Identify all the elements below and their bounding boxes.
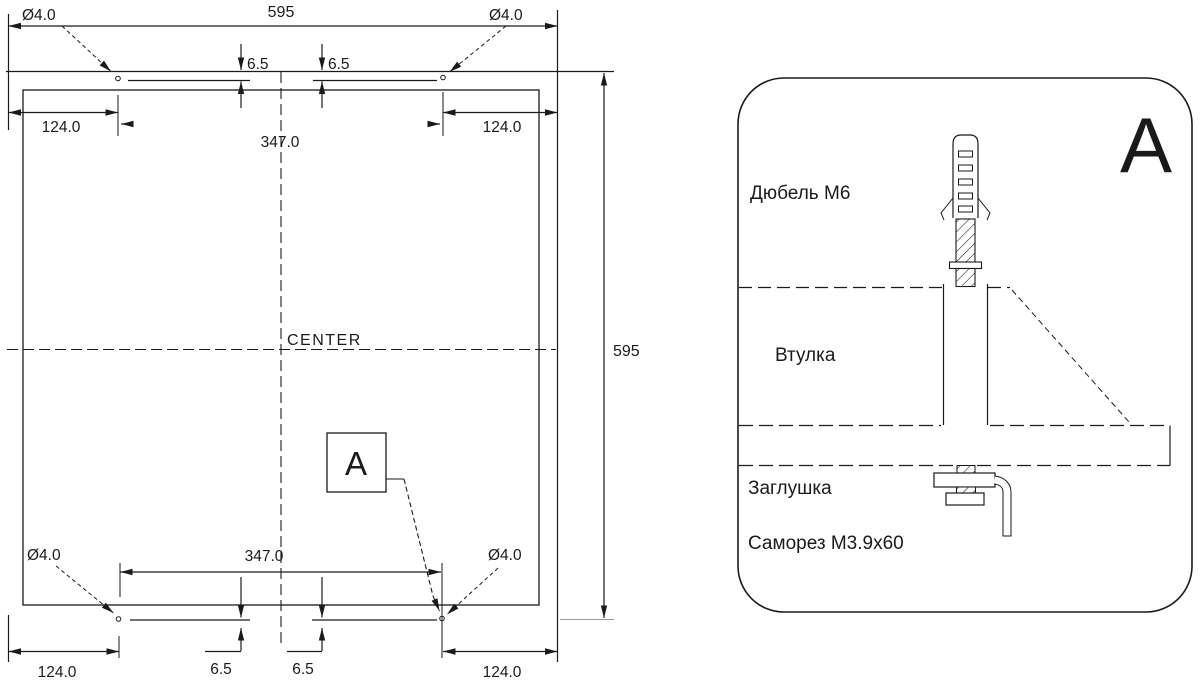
mounting-drawing-page: 595 595 6.5 6.5 124.0 124.0 347.0 CENTER…	[0, 0, 1200, 680]
dim-edge-offset-bottom-left-label: 124.0	[38, 664, 77, 680]
dim-edge-offset-bottom-right-label: 124.0	[483, 664, 522, 680]
dim-overall-width-label: 595	[268, 4, 295, 21]
detail-view-title: A	[1120, 101, 1172, 189]
dim-hole-inset-bottom-left-label: 6.5	[210, 661, 232, 678]
hole-dia-bottom-right-label: Ø4.0	[488, 547, 522, 564]
hole-dia-top-left-label: Ø4.0	[22, 7, 56, 24]
dim-hole-inset-top-left-label: 6.5	[247, 56, 269, 73]
center-label: CENTER	[287, 332, 362, 349]
detail-marker-label: A	[345, 445, 367, 482]
dim-overall-height-label: 595	[613, 343, 640, 360]
dim-hole-spacing-bottom-label: 347.0	[245, 548, 284, 565]
part-dowel-label: Дюбель М6	[750, 183, 850, 204]
dim-hole-inset-bottom-right-label: 6.5	[292, 661, 314, 678]
dim-hole-spacing-top-label: 347.0	[261, 134, 300, 151]
part-sleeve-label: Втулка	[775, 345, 836, 366]
part-screw-label: Саморез М3.9x60	[748, 533, 904, 554]
detail-view: A	[738, 78, 1192, 612]
dim-edge-offset-top-left-label: 124.0	[42, 119, 81, 136]
dim-edge-offset-top-right-label: 124.0	[483, 119, 522, 136]
hole-reference-lines	[128, 81, 437, 621]
technical-drawing: 595 595 6.5 6.5 124.0 124.0 347.0 CENTER…	[0, 0, 1200, 680]
hole-dia-top-right-label: Ø4.0	[489, 7, 523, 24]
dim-edge-offset-top: 124.0 124.0	[9, 92, 558, 136]
part-plug-label: Заглушка	[748, 478, 832, 499]
dim-overall-height: 595	[560, 73, 640, 620]
dim-hole-inset-top-right-label: 6.5	[328, 56, 350, 73]
hole-dia-bottom-left-label: Ø4.0	[27, 547, 61, 564]
hole-callouts: Ø4.0 Ø4.0 Ø4.0 Ø4.0	[22, 7, 523, 615]
dim-edge-offset-bottom: 124.0 124.0	[9, 652, 558, 680]
detail-marker: A	[327, 433, 440, 611]
dim-overall-width: 595	[9, 4, 558, 26]
dim-hole-inset-bottom	[205, 577, 322, 652]
